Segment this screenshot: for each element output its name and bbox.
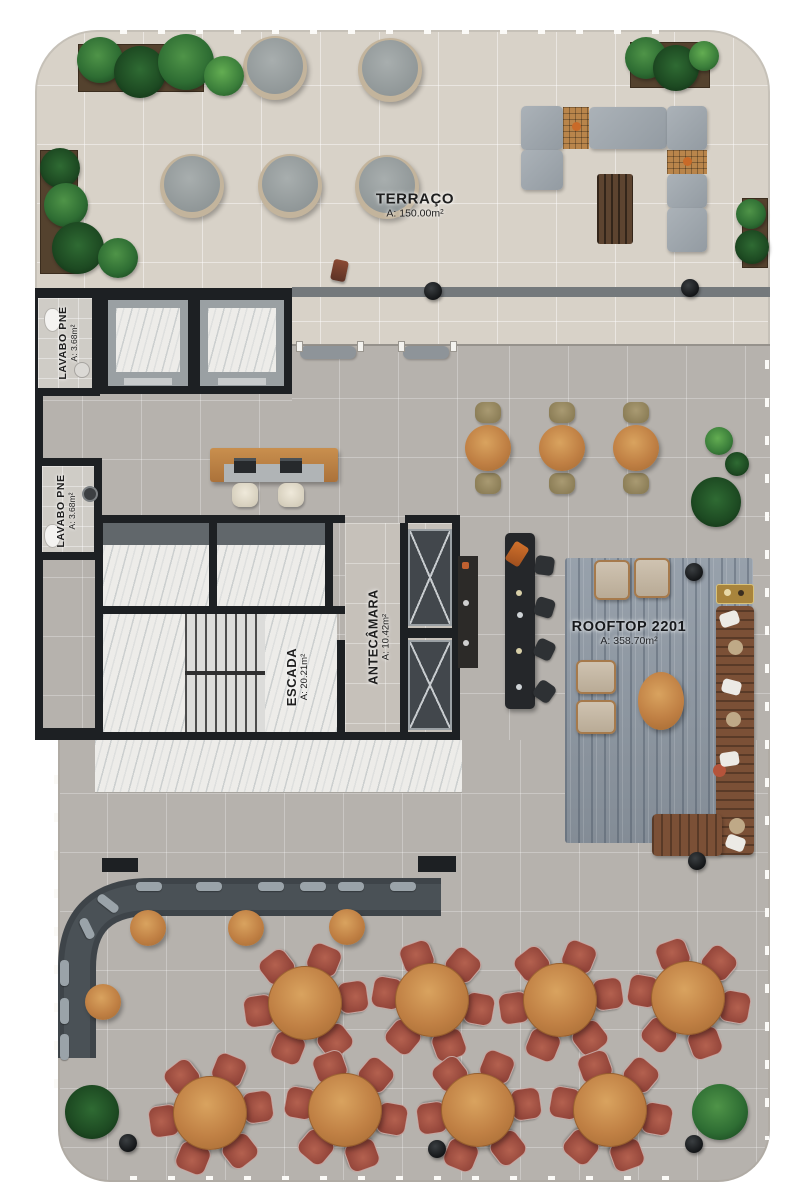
sofa-pillow-tan bbox=[726, 712, 741, 727]
bistro-table bbox=[539, 425, 585, 471]
rooftop-armchair bbox=[576, 700, 616, 734]
elevator-door bbox=[218, 378, 266, 385]
banquette-pillow bbox=[60, 960, 69, 986]
sofa-pillow-tan bbox=[729, 818, 745, 834]
banquette-pillow bbox=[196, 882, 222, 891]
bistro-chair bbox=[623, 402, 649, 423]
banquette-table bbox=[85, 984, 121, 1020]
coffee-table bbox=[597, 174, 633, 244]
dining-table bbox=[441, 1073, 515, 1147]
column bbox=[688, 852, 706, 870]
bistro-chair bbox=[475, 473, 501, 494]
plant bbox=[735, 230, 769, 264]
bistro-chair bbox=[623, 473, 649, 494]
sofa-chaise bbox=[667, 208, 707, 252]
column bbox=[685, 563, 703, 581]
desk-chair bbox=[232, 483, 258, 507]
bistro-chair bbox=[475, 402, 501, 423]
banquette-pillow bbox=[60, 998, 69, 1024]
column bbox=[119, 1134, 137, 1152]
banquette-pillow bbox=[258, 882, 284, 891]
laptop bbox=[280, 458, 302, 473]
dining-table bbox=[173, 1076, 247, 1150]
candle bbox=[683, 157, 692, 166]
plant bbox=[736, 199, 766, 229]
core-inner-wall bbox=[95, 606, 345, 614]
elevator-shaft bbox=[408, 529, 452, 626]
stair-handrail bbox=[185, 671, 265, 675]
round-lounger-cushion bbox=[362, 40, 418, 96]
column bbox=[428, 1140, 446, 1158]
core-inner-wall bbox=[325, 523, 333, 614]
bottle bbox=[516, 684, 522, 690]
plant bbox=[725, 452, 749, 476]
banquette-pillow bbox=[390, 882, 416, 891]
candle bbox=[572, 122, 581, 131]
elevator-cab-floor bbox=[208, 308, 276, 372]
sofa-seat bbox=[667, 174, 707, 208]
plant bbox=[40, 148, 80, 188]
cabinet-item bbox=[463, 600, 469, 606]
banquette-table bbox=[228, 910, 264, 946]
label-terraco: TERRAÇO A: 150.00m² bbox=[376, 191, 454, 220]
column bbox=[685, 1135, 703, 1153]
bistro-table bbox=[465, 425, 511, 471]
rooftop-armchair bbox=[634, 558, 670, 598]
dining-table bbox=[395, 963, 469, 1037]
bottle bbox=[516, 590, 522, 596]
rooftop-armchair bbox=[576, 660, 616, 694]
kitchen-cabinet bbox=[458, 556, 478, 668]
desk-chair bbox=[278, 483, 304, 507]
plant bbox=[691, 477, 741, 527]
banquette-pillow bbox=[300, 882, 326, 891]
railing-left-lower bbox=[54, 775, 58, 1105]
sofa-chaise bbox=[521, 106, 563, 150]
laptop bbox=[234, 458, 256, 473]
plant bbox=[44, 183, 88, 227]
bottle bbox=[517, 612, 523, 618]
round-lounger-cushion bbox=[247, 38, 303, 94]
bottle bbox=[516, 648, 522, 654]
sofa-seat bbox=[589, 107, 667, 149]
plant bbox=[692, 1084, 748, 1140]
bistro-table bbox=[613, 425, 659, 471]
label-antecamara: ANTECÂMARA A: 10.42m² bbox=[367, 589, 392, 685]
rooftop-coffee-table bbox=[638, 672, 684, 730]
storage-shelf bbox=[103, 523, 209, 545]
sink bbox=[82, 486, 98, 502]
floor-plan-canvas: TERRAÇO A: 150.00m² LAVABO PNE A: 3.68m²… bbox=[0, 0, 795, 1200]
core-inner-wall bbox=[337, 640, 345, 740]
bistro-chair bbox=[549, 402, 575, 423]
banquette-pillow bbox=[60, 1034, 69, 1060]
label-lavabo-pne-1: LAVABO PNE A: 3.68m² bbox=[57, 306, 79, 379]
bar-cart bbox=[716, 584, 754, 604]
label-escada: ESCADA A: 20.21m² bbox=[284, 648, 310, 707]
elevator-shaft bbox=[408, 640, 452, 730]
cabinet-item bbox=[462, 562, 469, 569]
dining-table bbox=[308, 1073, 382, 1147]
bar-stool bbox=[534, 555, 555, 576]
round-lounger-cushion bbox=[164, 156, 220, 212]
railing-right-lower bbox=[765, 870, 769, 1140]
dining-table bbox=[523, 963, 597, 1037]
bistro-chair bbox=[549, 473, 575, 494]
bottle bbox=[738, 590, 744, 596]
dining-table bbox=[651, 961, 725, 1035]
label-lavabo-pne-2: LAVABO PNE A: 3.68m² bbox=[55, 474, 77, 547]
dining-table bbox=[573, 1073, 647, 1147]
banquette-table bbox=[130, 910, 166, 946]
column bbox=[424, 282, 442, 300]
plant bbox=[52, 222, 104, 274]
banquette-table bbox=[329, 909, 365, 945]
banquette-pillow bbox=[338, 882, 364, 891]
core-inner-wall bbox=[209, 523, 217, 610]
column bbox=[681, 279, 699, 297]
rooftop-armchair bbox=[594, 560, 630, 600]
plant bbox=[204, 56, 244, 96]
plant bbox=[65, 1085, 119, 1139]
storage-shelf bbox=[217, 523, 325, 545]
dining-table bbox=[268, 966, 342, 1040]
cabinet-item bbox=[463, 640, 469, 646]
railing-top bbox=[120, 30, 660, 34]
round-lounger-cushion bbox=[262, 156, 318, 212]
sofa-chaise bbox=[667, 106, 707, 150]
plant bbox=[689, 41, 719, 71]
railing-right-upper bbox=[765, 360, 769, 830]
sofa-pillow-white bbox=[719, 751, 740, 768]
bottle bbox=[724, 589, 731, 596]
plant bbox=[705, 427, 733, 455]
banquette-pillow bbox=[136, 882, 162, 891]
elevator-cab-floor bbox=[116, 308, 180, 372]
sofa-pillow-tan bbox=[728, 640, 743, 655]
elevator-door bbox=[124, 378, 172, 385]
plant bbox=[98, 238, 138, 278]
shaft-wall bbox=[404, 628, 454, 638]
railing-bottom bbox=[130, 1176, 670, 1180]
sofa-seat bbox=[521, 150, 563, 190]
label-rooftop: ROOFTOP 2201 A: 358.70m² bbox=[572, 619, 687, 647]
